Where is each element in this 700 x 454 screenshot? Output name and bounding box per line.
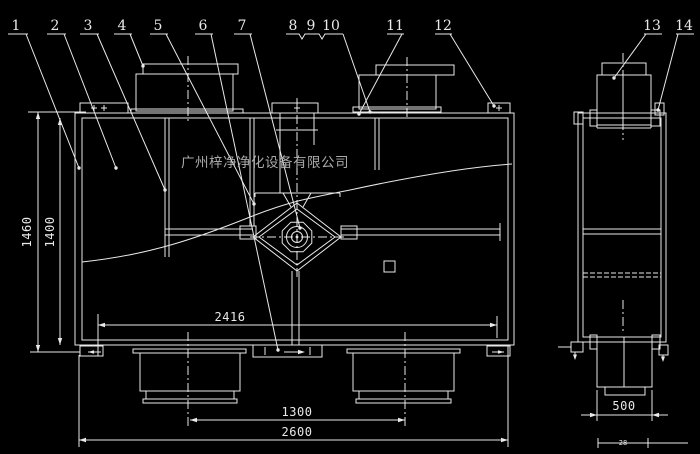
callout-9: 9 — [307, 18, 316, 34]
dim-text-500: 500 — [612, 399, 635, 413]
background — [0, 0, 700, 454]
cad-canvas: 1 2 3 4 5 6 7 8 9 10 11 12 13 14 — [0, 0, 700, 454]
callout-3: 3 — [84, 18, 93, 34]
cad-drawing: 1 2 3 4 5 6 7 8 9 10 11 12 13 14 — [0, 0, 700, 454]
dim-text-2600: 2600 — [282, 425, 313, 439]
callout-2: 2 — [51, 18, 60, 34]
callout-13: 13 — [643, 18, 661, 34]
dim-text-1460: 1460 — [20, 217, 34, 248]
callout-6: 6 — [199, 18, 208, 34]
callout-10: 10 — [322, 18, 340, 34]
callout-7: 7 — [238, 18, 247, 34]
callout-12: 12 — [434, 18, 452, 34]
dim-text-1300: 1300 — [282, 405, 313, 419]
callout-1: 1 — [12, 18, 21, 34]
callout-5: 5 — [154, 18, 163, 34]
callout-11: 11 — [386, 18, 404, 34]
callout-8: 8 — [289, 18, 298, 34]
dim-text-1400: 1400 — [43, 217, 57, 248]
dim-text-28: 28 — [619, 439, 627, 447]
company-watermark: 广州梓净净化设备有限公司 — [181, 154, 349, 171]
dim-text-2416: 2416 — [215, 310, 246, 324]
callout-4: 4 — [118, 18, 127, 34]
callout-14: 14 — [675, 18, 693, 34]
